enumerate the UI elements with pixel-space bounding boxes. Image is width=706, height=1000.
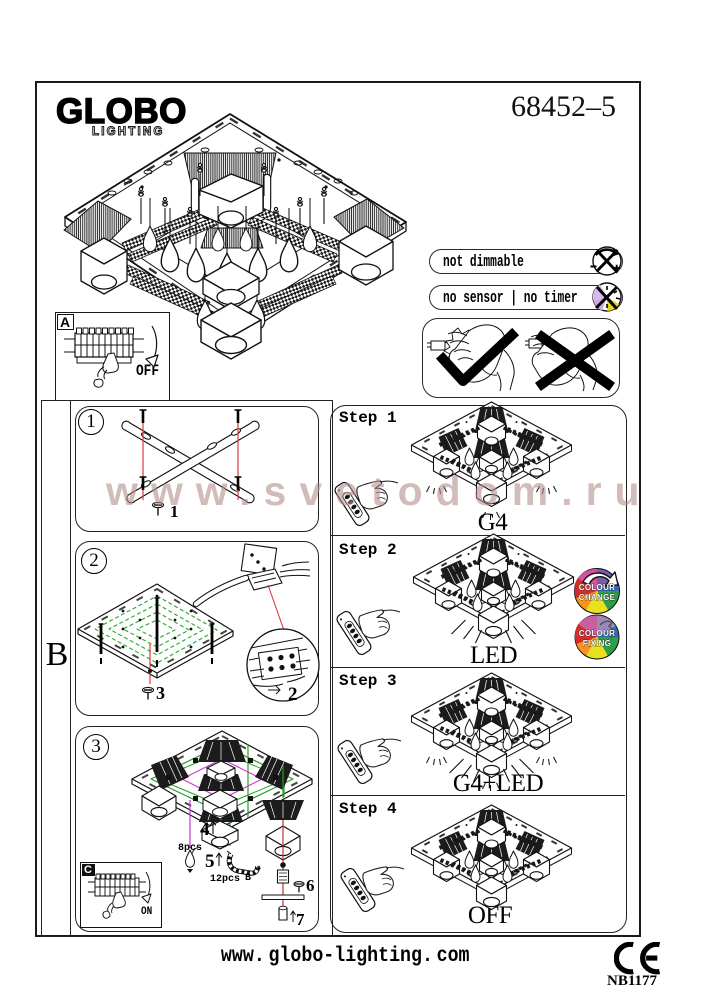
svg-text:6: 6 (306, 876, 315, 895)
svg-text:B: B (245, 873, 251, 884)
svg-text:12pcs: 12pcs (210, 874, 240, 885)
svg-text:5: 5 (205, 851, 215, 872)
svg-text:2: 2 (288, 684, 298, 705)
svg-text:COLOUR: COLOUR (579, 583, 615, 592)
svg-text:COLOUR: COLOUR (579, 629, 615, 638)
svg-text:CHANGE: CHANGE (579, 593, 616, 602)
svg-text:4: 4 (200, 819, 210, 840)
svg-text:3: 3 (156, 683, 165, 703)
svg-text:7: 7 (296, 910, 305, 929)
svg-text:FIXING: FIXING (583, 639, 611, 648)
